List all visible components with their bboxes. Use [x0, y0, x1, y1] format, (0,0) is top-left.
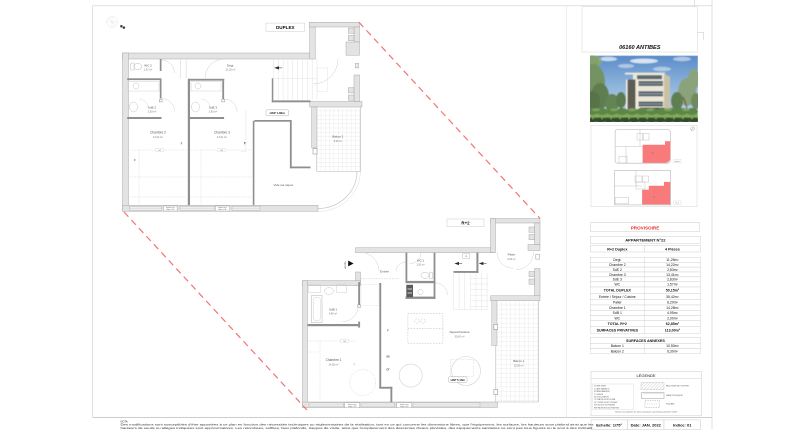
svg-text:SS: SS	[386, 356, 390, 359]
svg-text:Palier: Palier	[508, 253, 516, 257]
svg-text:113,00m²: 113,00m²	[665, 328, 681, 332]
svg-text:Entrée: Entrée	[380, 269, 389, 273]
svg-text:Balcon 2: Balcon 2	[332, 135, 343, 139]
svg-text:GAINE TECHNIQUE: GAINE TECHNIQUE	[666, 394, 683, 397]
svg-text:SdB 1: SdB 1	[613, 311, 622, 315]
svg-text:Degt.: Degt.	[613, 258, 621, 262]
svg-text:Balcon 1: Balcon 1	[611, 344, 624, 348]
svg-text:C CUISSON: C CUISSON	[594, 394, 604, 396]
svg-text:10,50 m²: 10,50 m²	[514, 364, 524, 367]
svg-text:Indice: 01: Indice: 01	[673, 423, 692, 428]
svg-text:CF: CF	[386, 369, 390, 372]
svg-text:ACCÈS: ACCÈS	[344, 261, 347, 269]
svg-text:2,83m²: 2,83m²	[667, 278, 678, 282]
svg-text:6,30m²: 6,30m²	[667, 349, 678, 353]
svg-text:PLACARD: PLACARD	[666, 403, 675, 406]
svg-text:TOTAL R+2: TOTAL R+2	[608, 322, 627, 326]
svg-text:10,50m²: 10,50m²	[666, 344, 679, 348]
svg-text:14,22 m²: 14,22 m²	[153, 136, 163, 139]
svg-text:Dégt.: Dégt.	[227, 63, 234, 67]
svg-text:11,25m²: 11,25m²	[666, 258, 679, 262]
svg-text:Chambre 1: Chambre 1	[609, 306, 626, 310]
svg-text:WC: WC	[614, 283, 620, 287]
svg-text:6,30 m²: 6,30 m²	[334, 140, 342, 143]
svg-text:SdE 3: SdE 3	[613, 278, 622, 282]
svg-text:WC 1: WC 1	[417, 258, 425, 262]
svg-text:14,22m²: 14,22m²	[666, 263, 679, 267]
svg-text:Séjour/Cuisine: Séjour/Cuisine	[449, 330, 469, 334]
svg-text:allège +0,50: allège +0,50	[348, 406, 356, 408]
svg-text:SdE 3: SdE 3	[209, 106, 218, 110]
svg-text:Chambre 3: Chambre 3	[609, 273, 626, 277]
svg-text:allège +0,60: allège +0,60	[166, 209, 174, 211]
svg-text:2,83 m²: 2,83 m²	[148, 111, 157, 114]
svg-text:35,42m²: 35,42m²	[666, 295, 679, 299]
svg-text:2,00 m²: 2,00 m²	[416, 263, 424, 266]
svg-text:6,20m²: 6,20m²	[667, 301, 678, 305]
svg-text:13,41 m²: 13,41 m²	[217, 136, 227, 139]
svg-text:R+2: R+2	[676, 203, 679, 205]
svg-text:Balcon 1: Balcon 1	[513, 359, 524, 363]
svg-text:2,83 m²: 2,83 m²	[209, 111, 218, 114]
svg-text:HSP 5,18m: HSP 5,18m	[451, 378, 466, 382]
svg-text:Chambre 2: Chambre 2	[609, 263, 626, 267]
svg-text:duplex: duplex	[675, 161, 680, 163]
svg-text:2,00m²: 2,00m²	[667, 316, 678, 320]
svg-text:06160 ANTIBES: 06160 ANTIBES	[619, 45, 661, 51]
svg-text:DUPLEX: DUPLEX	[276, 25, 296, 30]
svg-text:SdB 1: SdB 1	[329, 308, 338, 312]
svg-text:35,42 m²: 35,42 m²	[455, 336, 465, 339]
svg-text:50,15m²: 50,15m²	[666, 289, 680, 293]
svg-text:R+2: R+2	[461, 221, 470, 226]
svg-text:SdE 2: SdE 2	[148, 106, 157, 110]
svg-text:TOTAL DUPLEX: TOTAL DUPLEX	[604, 289, 632, 293]
svg-text:14,28m²: 14,28m²	[666, 306, 679, 310]
svg-text:SURFACES ANNEXES: SURFACES ANNEXES	[626, 339, 665, 343]
svg-text:4,95 m²: 4,95 m²	[329, 312, 337, 315]
svg-text:1,57m²: 1,57m²	[667, 283, 678, 287]
svg-text:6,20 m²: 6,20 m²	[507, 258, 515, 261]
svg-text:Chambre 1: Chambre 1	[326, 358, 342, 362]
svg-text:allège +0,60: allège +0,60	[218, 209, 226, 211]
svg-text:HSP 1,80m: HSP 1,80m	[270, 111, 286, 115]
svg-text:Palier: Palier	[613, 301, 623, 305]
svg-text:Chambre 2: Chambre 2	[150, 131, 166, 135]
svg-text:SdE 2: SdE 2	[613, 268, 622, 272]
svg-text:LÉGENDE: LÉGENDE	[636, 373, 655, 378]
svg-text:62,85m²: 62,85m²	[666, 322, 680, 326]
svg-text:allège +0,50: allège +0,50	[400, 406, 408, 408]
svg-text:FAUX PLAFOND / SOFFITE: FAUX PLAFOND / SOFFITE	[666, 385, 690, 388]
svg-text:4 Pièces: 4 Pièces	[665, 247, 680, 251]
svg-text:R+2 Duplex: R+2 Duplex	[607, 247, 628, 251]
svg-text:1,57 m²: 1,57 m²	[144, 69, 153, 72]
svg-text:Hauteur sous plafonds des pièc: Hauteur sous plafonds des pièces princip…	[615, 410, 678, 413]
svg-text:Date: JAN. 2022: Date: JAN. 2022	[631, 423, 662, 428]
svg-text:WC: WC	[614, 316, 620, 320]
svg-text:2,83m²: 2,83m²	[667, 268, 678, 272]
svg-text:Echelle: 1/75°: Echelle: 1/75°	[596, 423, 622, 428]
svg-text:Entrée / Séjour / Cuisine: Entrée / Séjour / Cuisine	[599, 295, 636, 299]
svg-text:WC 2: WC 2	[144, 63, 152, 67]
svg-text:13,41m²: 13,41m²	[666, 273, 679, 277]
svg-text:Balcon 2: Balcon 2	[611, 349, 624, 353]
svg-text:PROVISOIRE: PROVISOIRE	[631, 225, 660, 230]
svg-text:4,95m²: 4,95m²	[667, 311, 678, 315]
svg-text:Vide sur séjour: Vide sur séjour	[274, 183, 294, 187]
svg-text:hauteurs de seuils ou allèges: hauteurs de seuils ou allèges indiquées …	[121, 426, 594, 430]
svg-text:11,25 m²: 11,25 m²	[226, 69, 236, 72]
svg-text:APPARTEMENT N°22: APPARTEMENT N°22	[625, 237, 666, 242]
svg-text:Chambre 3: Chambre 3	[214, 131, 230, 135]
svg-text:14,28 m²: 14,28 m²	[329, 364, 339, 367]
svg-text:SURFACES PRIVATIVES: SURFACES PRIVATIVES	[597, 328, 639, 332]
